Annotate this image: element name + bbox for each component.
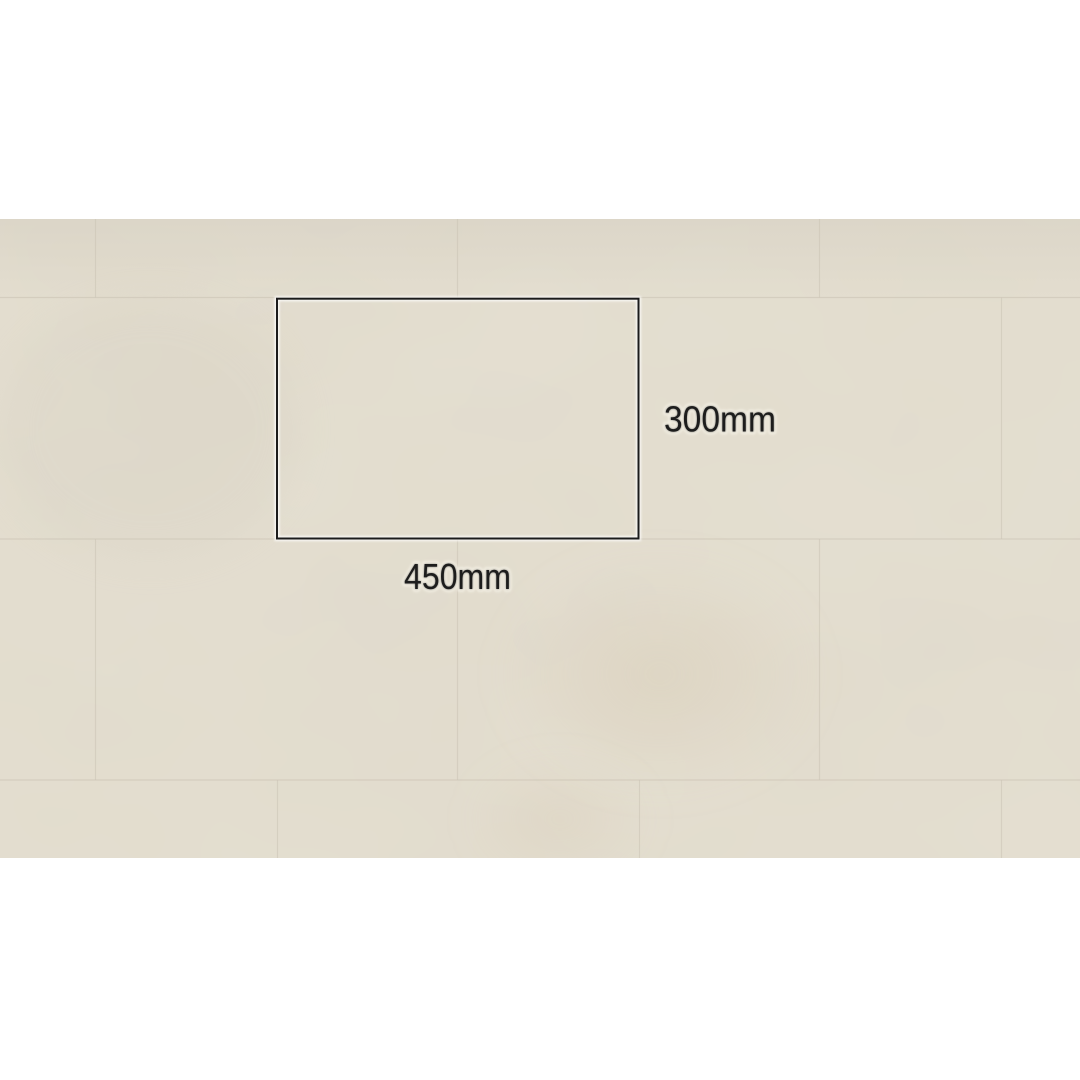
svg-text:300mm: 300mm bbox=[664, 399, 776, 440]
svg-text:450mm: 450mm bbox=[404, 556, 511, 597]
